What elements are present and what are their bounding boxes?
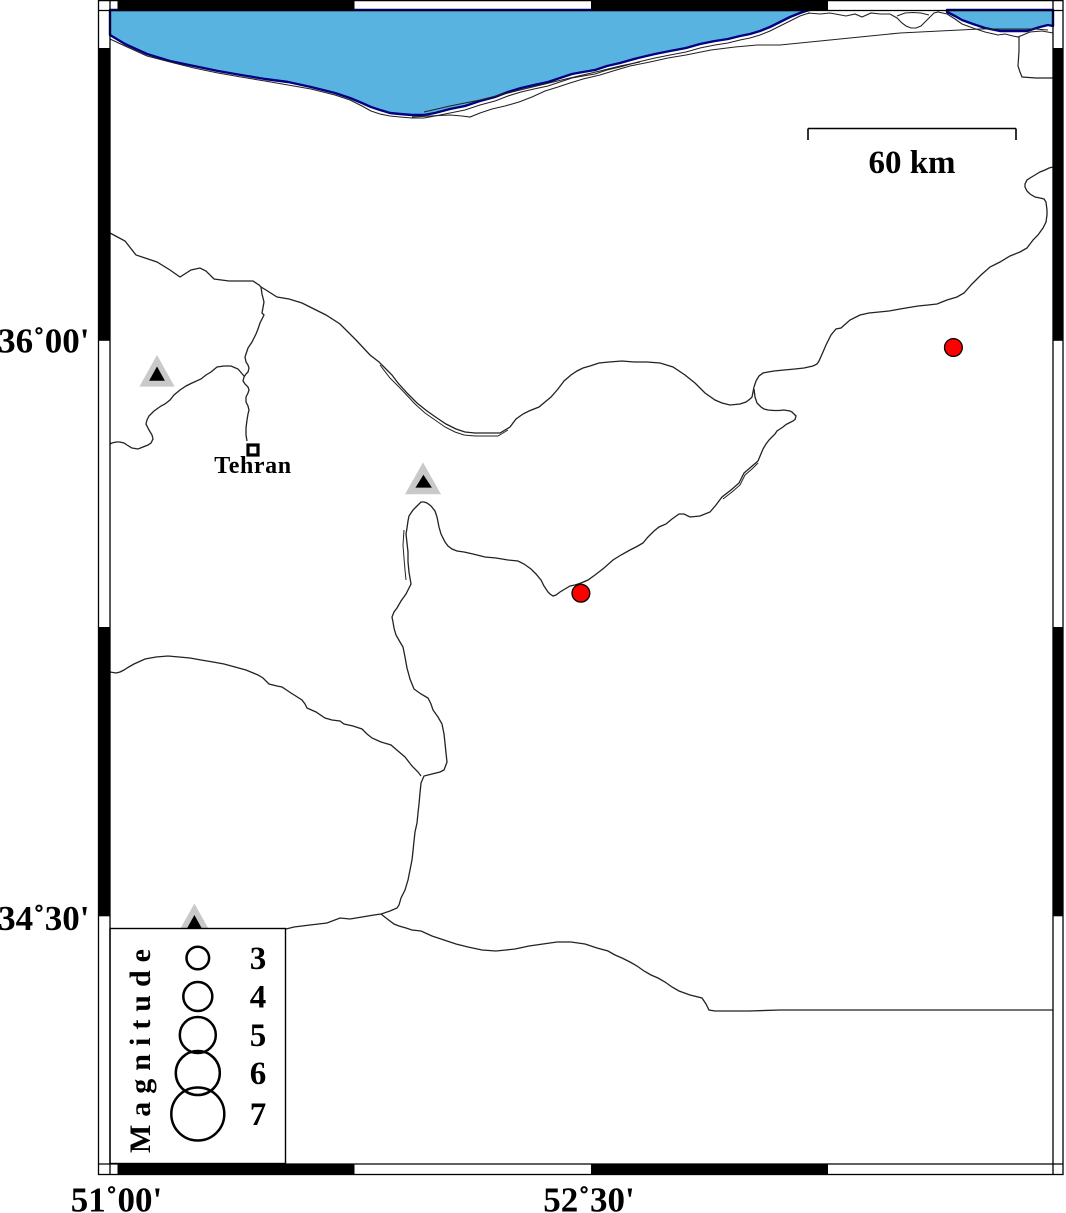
svg-text:7: 7 xyxy=(250,1097,267,1133)
svg-text:52˚30': 52˚30' xyxy=(543,1181,634,1213)
svg-text:4: 4 xyxy=(250,980,267,1016)
svg-text:5: 5 xyxy=(250,1018,267,1054)
svg-text:34˚30': 34˚30' xyxy=(0,899,90,938)
svg-text:3: 3 xyxy=(250,941,267,977)
svg-text:Tehran: Tehran xyxy=(214,453,291,479)
svg-text:Magnitude: Magnitude xyxy=(124,941,157,1153)
svg-text:6: 6 xyxy=(250,1056,267,1092)
svg-text:51˚00': 51˚00' xyxy=(71,1181,162,1213)
svg-text:60 km: 60 km xyxy=(868,145,955,181)
svg-text:36˚00': 36˚00' xyxy=(0,322,90,361)
